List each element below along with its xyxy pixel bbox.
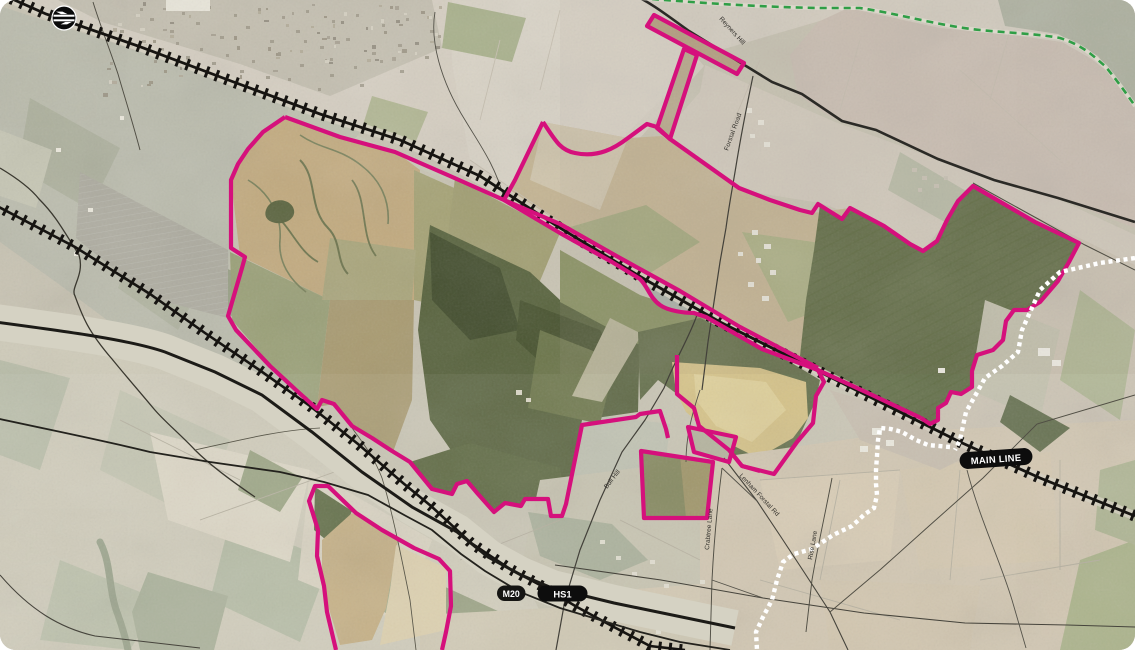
svg-text:M20: M20 xyxy=(503,589,520,599)
svg-text:HS1: HS1 xyxy=(553,589,571,600)
